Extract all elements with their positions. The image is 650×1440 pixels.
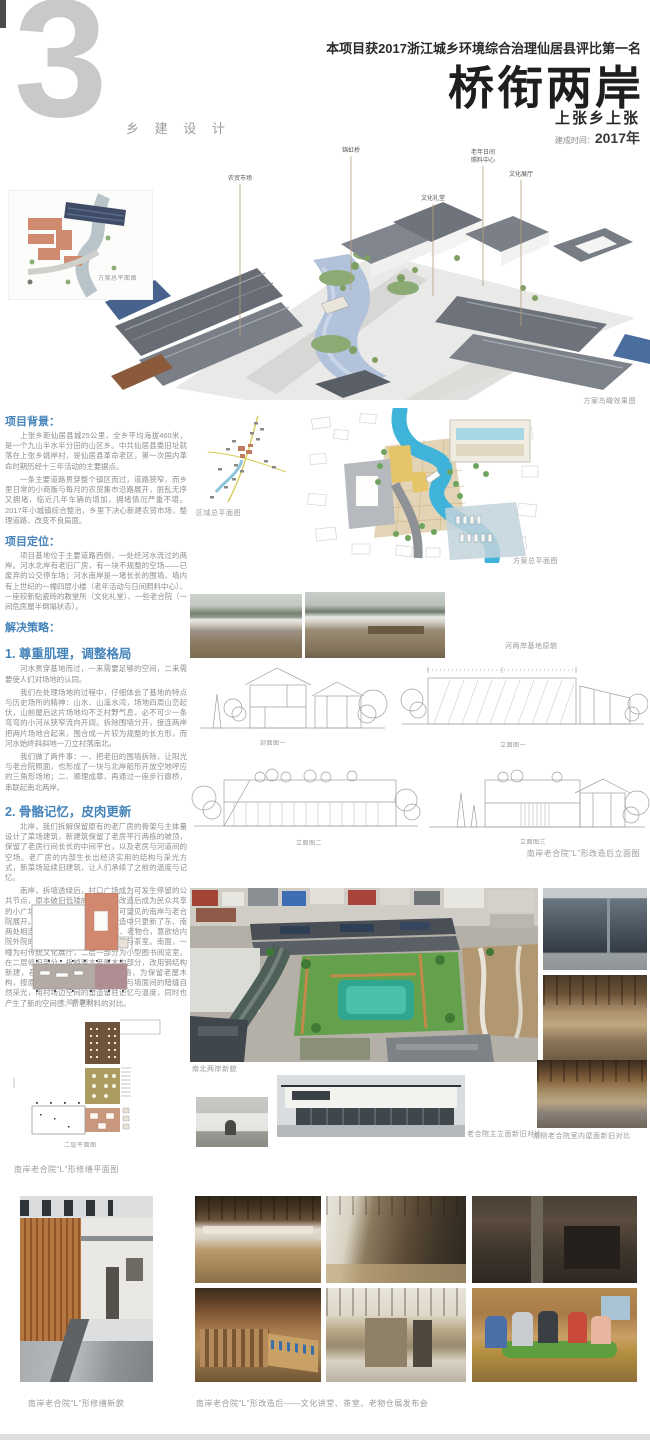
photo-courtyard-renovated [20, 1196, 153, 1382]
elevation-drawing-3 [425, 755, 650, 835]
section-heading-strategy: 解决策略： [5, 619, 187, 635]
facade-glass-band [296, 1108, 454, 1124]
elevation-drawing-1-caption: 立面图一 [500, 740, 526, 749]
building-edge-highlight [607, 898, 610, 954]
master-plan [300, 408, 545, 563]
axon-labels: 农贸市场 锦虹桥 文化礼堂 老年日间 照料中心 文化展厅 [228, 146, 533, 202]
photo-riverbank-before-1 [190, 594, 302, 658]
photo-renovated-facade [277, 1075, 465, 1137]
window-band [203, 1226, 314, 1235]
paragraph: 我们做了两件事：一、把老旧的围墙拆除，让阳光与老合院照面，也形成了一块与北岸船形… [5, 752, 187, 793]
plan-north-dot [28, 280, 33, 285]
photo-office-interior [326, 1196, 466, 1283]
poster-board: 3 乡 建 设 计 本项目获2017浙江城乡环境综合治理仙居县评比第一名 桥衔两… [0, 0, 650, 1440]
person [591, 1316, 611, 1344]
floor-plan-1-caption: 一层平面图 [60, 997, 93, 1006]
chair-rows [200, 1329, 269, 1367]
fp2-side-seats [123, 1108, 129, 1129]
mp-gray-building [344, 459, 395, 529]
elevation-note: 南岸老合院“L”形改造后立面图 [527, 848, 640, 859]
photo-dark-building-exterior [543, 888, 647, 970]
mp-factory-roof-1 [456, 428, 524, 440]
regional-map [198, 412, 293, 507]
facade-ground [277, 1125, 465, 1137]
label-elderly-care-1: 老年日间 [471, 148, 495, 156]
ceiling-beams [537, 1060, 647, 1082]
stone-paving [20, 1341, 153, 1382]
elevation-drawing-2-caption: 立面图二 [296, 838, 322, 847]
facade-compare-caption: 老合院主立面新旧对比 [467, 1129, 542, 1139]
old-shed-roofs [368, 626, 424, 634]
person [538, 1311, 558, 1343]
photo-warm-interior [543, 975, 647, 1060]
axon-caption: 方案鸟瞰效果图 [584, 396, 637, 406]
interior-compare-caption: 南侧老合院室内屋面新旧对比 [533, 1131, 631, 1141]
floor-plan-1 [10, 893, 178, 993]
upper-windows [20, 1200, 113, 1217]
site-plan-small-caption: 方案总平面图 [98, 273, 137, 282]
courtyard-roof-line [81, 1236, 153, 1241]
door-opening [413, 1320, 433, 1367]
mp-parking-lot [445, 502, 526, 560]
paragraph: 项目基地位于主要道路西侧，一处经河水流过的两岸。河水北岸有老旧厂房，有一块不规整… [5, 551, 187, 612]
photo-dining-hall [195, 1196, 321, 1283]
aerial-caption: 南北两岸新貌 [192, 1064, 237, 1074]
fp2-open-room [32, 1106, 85, 1134]
photo-riverbank-before-2 [305, 592, 445, 658]
program-caption: 南岸老合院“L”形改造后——文化讲堂、茶室、老物仓展发布会 [196, 1398, 428, 1409]
map-road-1 [228, 416, 258, 502]
section-heading-positioning: 项目定位： [5, 533, 187, 549]
blue-objects [271, 1340, 315, 1356]
before-photos-caption: 河两岸基地原貌 [505, 641, 558, 651]
floor-plan-2-caption: 二层平面图 [64, 1140, 97, 1149]
floor-strip [326, 1264, 466, 1283]
floor-plan-2 [10, 1018, 178, 1138]
master-plan-caption: 方案总平面图 [513, 556, 558, 566]
bottom-edge [0, 1434, 650, 1440]
photo-old-courtyard [196, 1097, 268, 1147]
elevation-drawing-1 [398, 658, 648, 736]
facade-windows [292, 1091, 330, 1100]
fp1-corridor [118, 893, 132, 950]
photo-flower-workshop [472, 1288, 637, 1382]
person [485, 1316, 506, 1348]
gate-opening [225, 1120, 237, 1135]
fp1-courtyard-room [32, 905, 85, 950]
map-stream [216, 460, 242, 492]
paragraph: 上张乡距仙居县城25公里，全乡平均海拔460米，是一个九山半水半分田的山区乡。中… [5, 431, 187, 472]
elevation-drawing-3-caption: 立面图三 [520, 837, 546, 846]
paragraph: 我们在处理场地的过程中，仔细体会了基地的特点与历史场所的精神：山水、山溪水湾，场… [5, 688, 187, 749]
courtyard-window [126, 1258, 143, 1280]
stone-column [531, 1196, 543, 1283]
paragraph: 河水贯穿基地而过，一来需要足够的空间，二来需要使人们对场地的认同。 [5, 664, 187, 684]
label-exhibition-hall: 文化展厅 [509, 170, 533, 178]
label-culture-hall: 文化礼堂 [421, 194, 445, 202]
aerial-east-grounds [462, 944, 538, 1038]
courtyard-new-caption: 南岸老合院“L”形修缮新貌 [28, 1398, 124, 1409]
fp2-stairs [121, 1068, 131, 1096]
person [568, 1312, 588, 1342]
strategy-1-heading: 1. 尊重肌理，调整格局 [5, 643, 187, 662]
label-elderly-care-2: 照料中心 [471, 156, 495, 164]
roof-beams [195, 1196, 321, 1220]
regional-map-caption: 区域总平面图 [196, 508, 241, 518]
fp2-corridor [120, 1020, 160, 1034]
person [512, 1312, 533, 1346]
fp1-table [94, 911, 108, 931]
photo-stone-wall-room [326, 1288, 466, 1382]
photo-old-storehouse-interior [472, 1196, 637, 1283]
floor-plan-note: 南岸老合院“L”形修缮平面图 [14, 1164, 119, 1175]
section-number: 3 [14, 0, 107, 142]
section-heading-background: 项目背景： [5, 413, 187, 429]
section-drawing-1 [195, 660, 390, 735]
ceiling-beams [326, 1288, 466, 1316]
machine-silhouette [564, 1226, 620, 1270]
section-label: 乡 建 设 计 [126, 118, 231, 137]
strategy-2-heading: 2. 骨骼记忆，皮肉更新 [5, 801, 187, 820]
paragraph: 一条主要道路贯穿整个镇区而过，道路狭窄，而乡里日常的小商贩与每月的农贸集市沿路展… [5, 475, 187, 526]
courtyard-door [106, 1267, 119, 1319]
photo-lecture-hall [195, 1288, 321, 1382]
corner-mark [0, 0, 6, 28]
stone-wall-panel [365, 1318, 407, 1367]
elevation-drawing-2 [190, 752, 422, 836]
ceiling-beams [543, 975, 647, 1005]
mp-factory-roof-2 [456, 444, 524, 456]
roof-beams [326, 1196, 466, 1215]
section-drawing-1-caption: 剖面图一 [260, 738, 286, 747]
site-plan-small [8, 190, 153, 300]
project-location: 上张乡上张 [555, 107, 640, 128]
display-table [268, 1333, 318, 1372]
courtyard-building [81, 1218, 153, 1318]
paragraph: 北岸，我们拆解保留原有的老厂房的骨架与主体量设计了菜场建筑，新建筑保留了老房平行… [5, 822, 187, 883]
map-village-core [238, 444, 253, 458]
label-jinhong-bridge: 锦虹桥 [342, 146, 360, 154]
label-farmers-market: 农贸市场 [228, 174, 252, 182]
photo-aerial-new [190, 888, 538, 1062]
photo-interior-roof-compare [537, 1060, 647, 1128]
axonometric-rendering: 农贸市场 锦虹桥 文化礼堂 老年日间 照料中心 文化展厅 [105, 138, 650, 400]
fp1-south-wing-pink [95, 964, 127, 989]
